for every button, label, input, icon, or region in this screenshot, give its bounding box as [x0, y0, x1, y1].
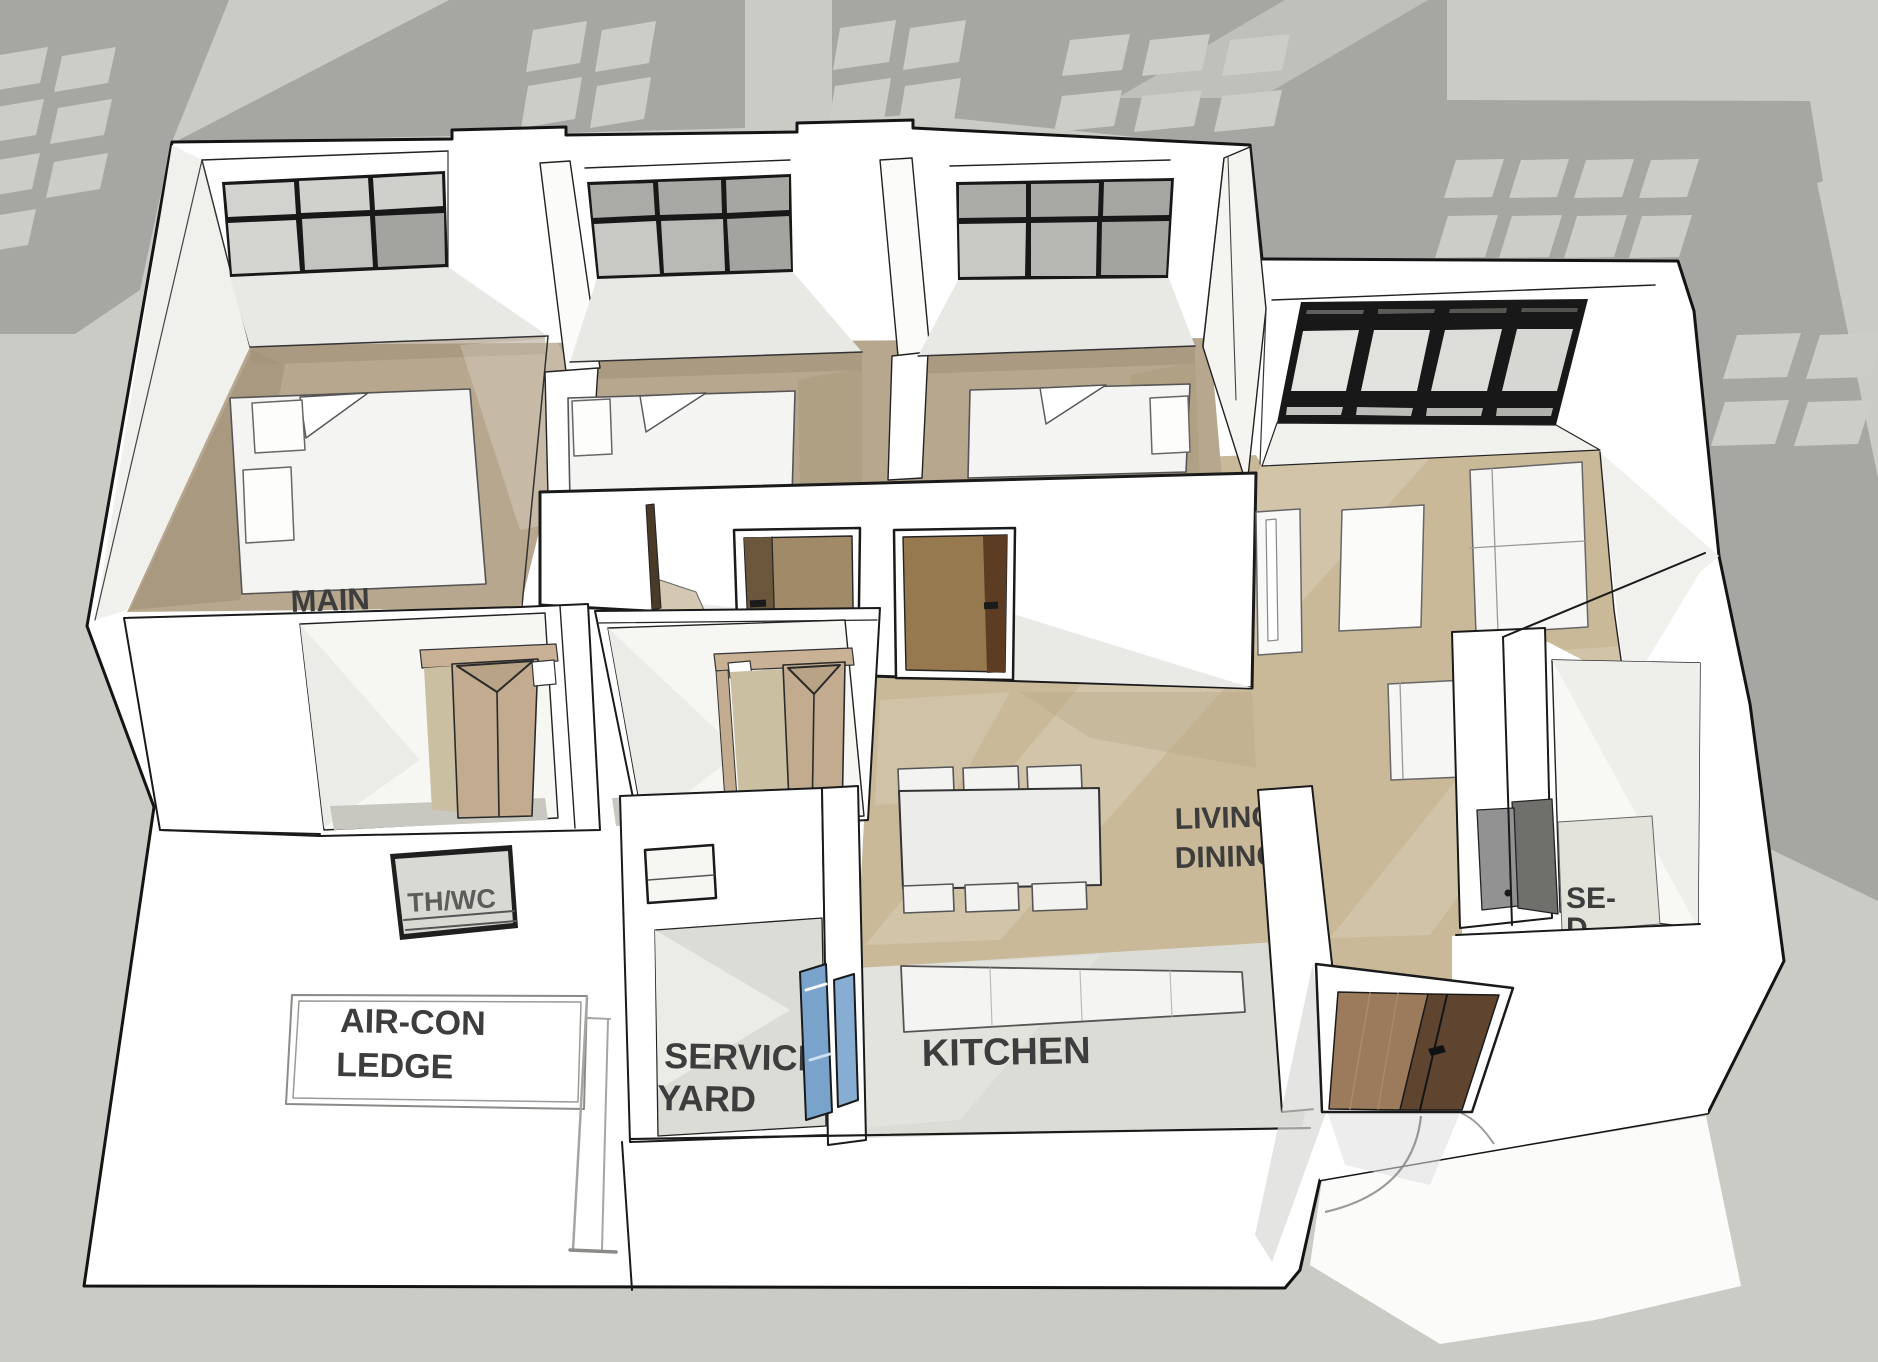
svg-text:LEDGE: LEDGE: [336, 1046, 454, 1086]
svg-text:AIR-CON: AIR-CON: [340, 1002, 486, 1043]
svg-text:TH/WC: TH/WC: [407, 883, 497, 918]
svg-text:KITCHEN: KITCHEN: [921, 1030, 1091, 1075]
svg-text:YARD: YARD: [657, 1077, 756, 1120]
svg-text:SE-: SE-: [1566, 882, 1616, 915]
svg-text:SERVICE: SERVICE: [664, 1035, 822, 1079]
